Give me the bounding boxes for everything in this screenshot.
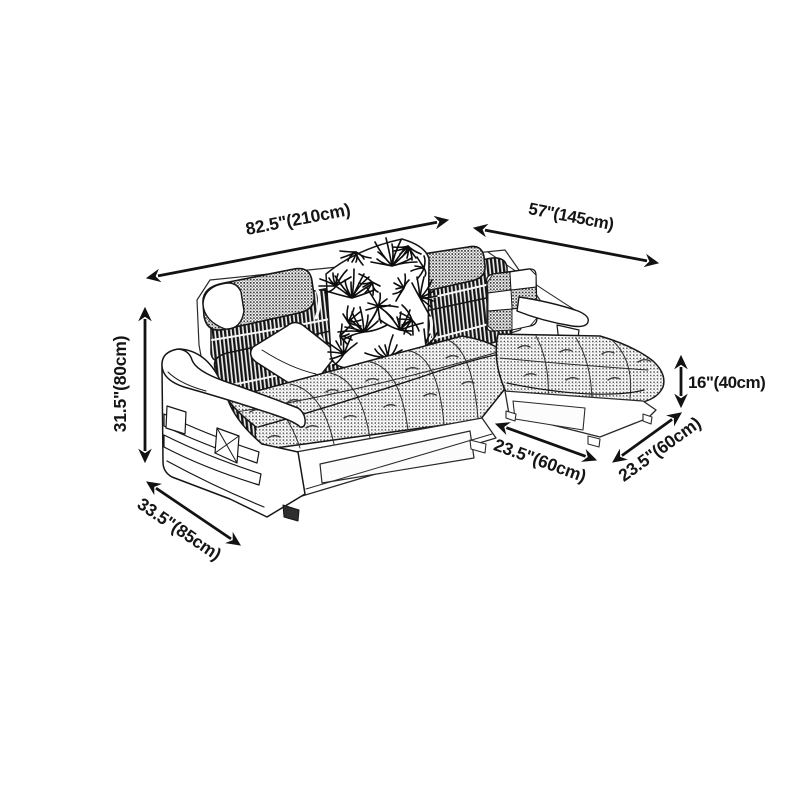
svg-text:31.5"(80cm): 31.5"(80cm)	[110, 336, 130, 433]
svg-text:16"(40cm): 16"(40cm)	[688, 373, 765, 392]
